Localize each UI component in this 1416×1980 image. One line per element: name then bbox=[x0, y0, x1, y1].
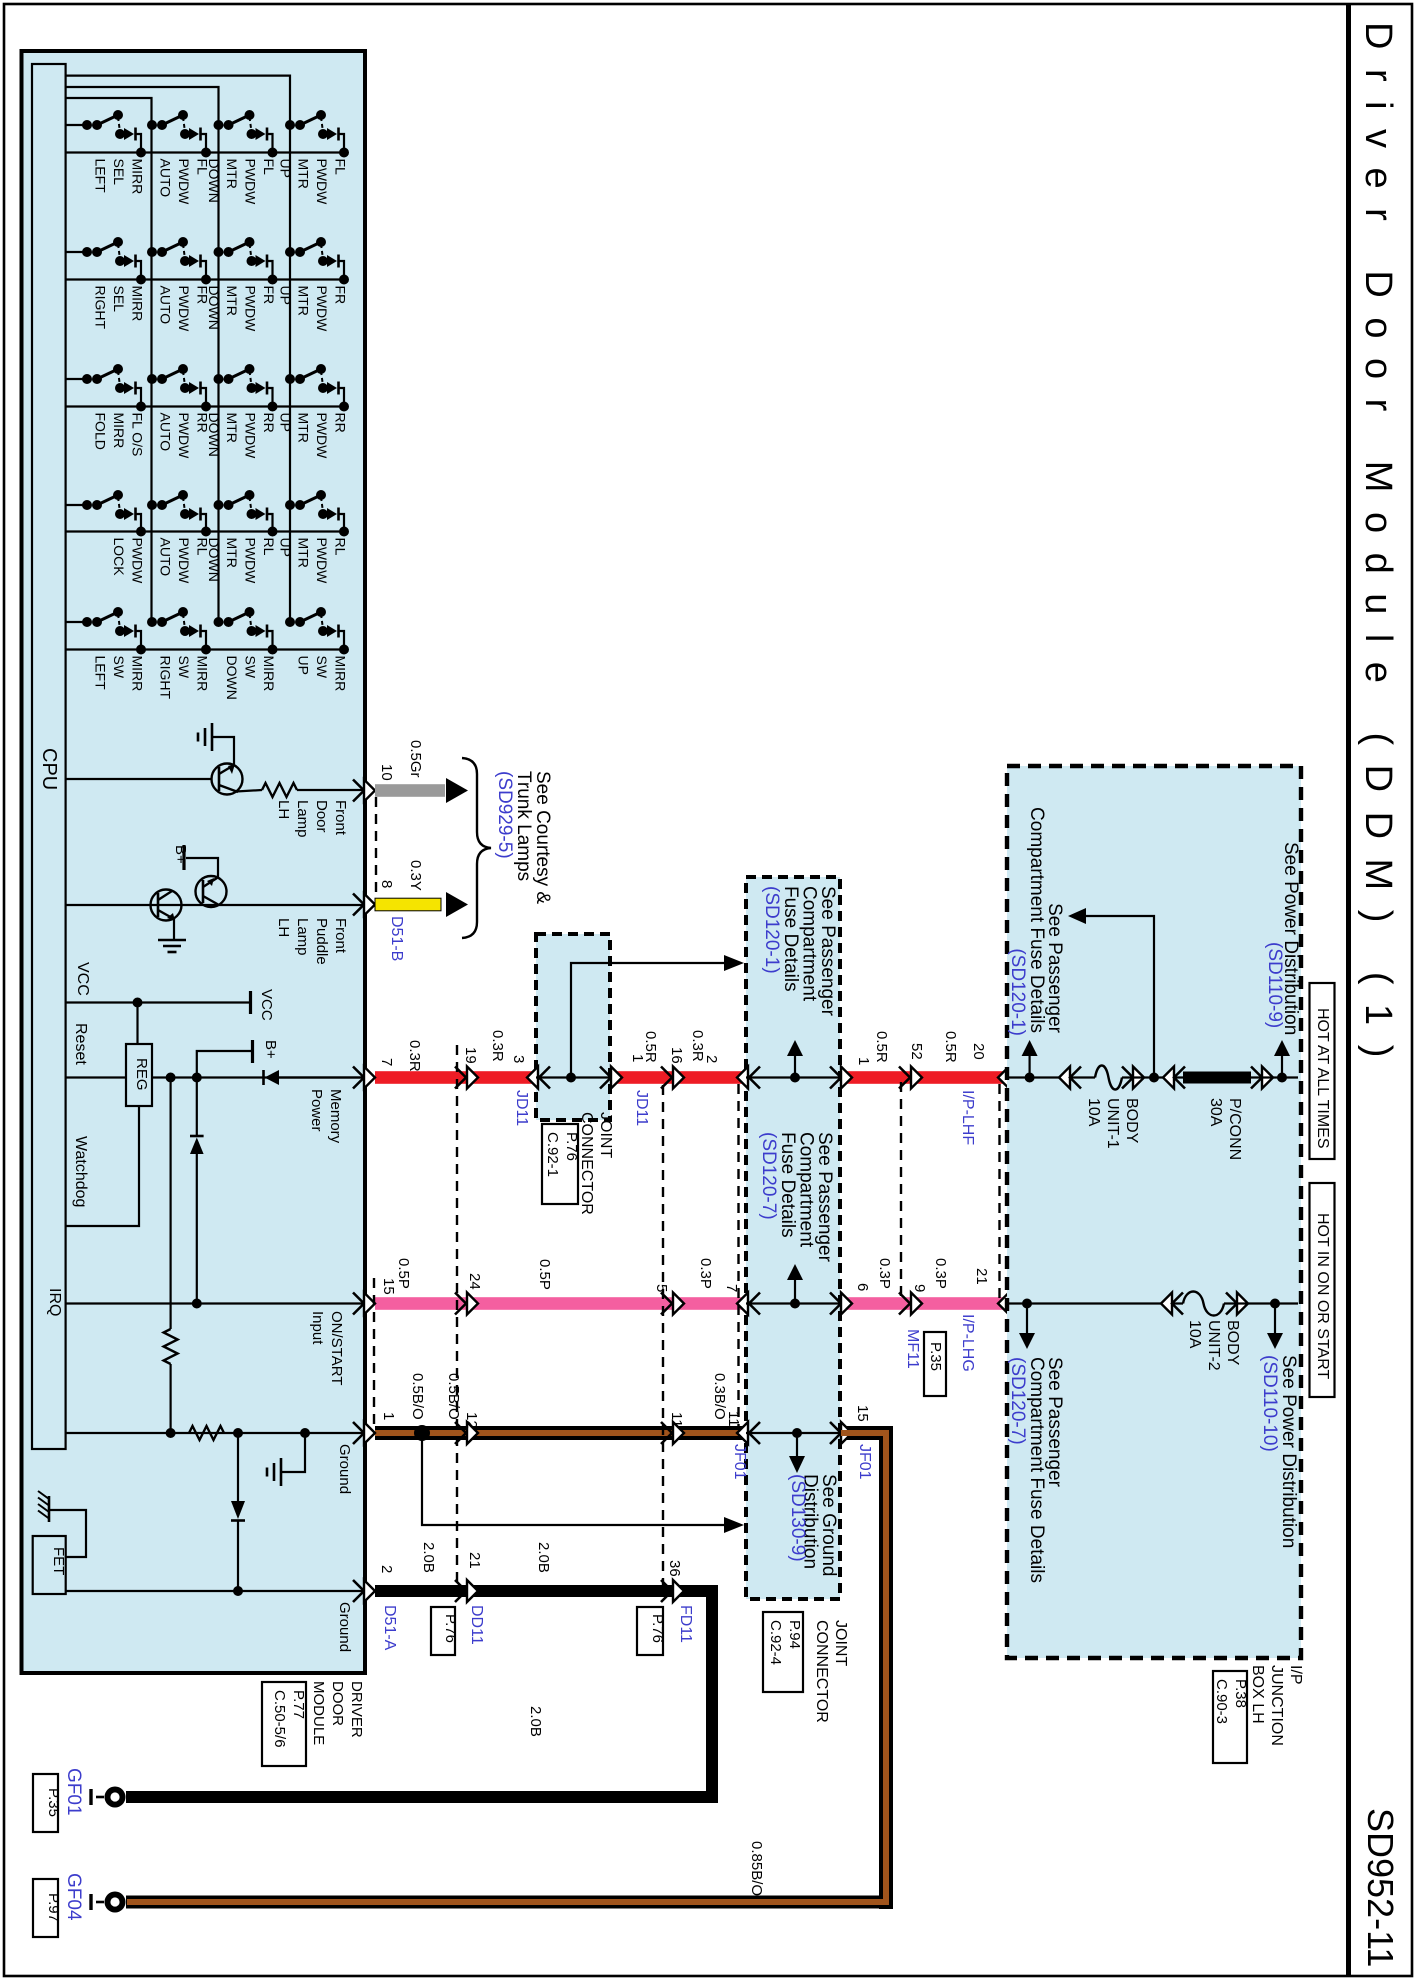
svg-text:10: 10 bbox=[378, 764, 395, 781]
svg-text:1: 1 bbox=[855, 1057, 872, 1065]
svg-text:0.5B/O: 0.5B/O bbox=[445, 1373, 462, 1420]
svg-text:12: 12 bbox=[463, 1412, 480, 1429]
svg-text:0.85B/O: 0.85B/O bbox=[748, 1841, 765, 1896]
svg-text:7: 7 bbox=[378, 1058, 395, 1066]
svg-text:0.3R: 0.3R bbox=[489, 1030, 506, 1062]
svg-text:B+: B+ bbox=[262, 1040, 279, 1059]
svg-text:19: 19 bbox=[462, 1047, 479, 1064]
svg-text:(SD120-7): (SD120-7) bbox=[758, 1132, 779, 1220]
svg-text:Compartment Fuse Details: Compartment Fuse Details bbox=[1026, 807, 1047, 1033]
svg-text:D51-A: D51-A bbox=[381, 1605, 398, 1651]
svg-text:(SD130-9): (SD130-9) bbox=[787, 1474, 808, 1562]
svg-text:FET: FET bbox=[50, 1547, 67, 1575]
svg-text:JD11: JD11 bbox=[633, 1090, 650, 1126]
svg-text:P.76: P.76 bbox=[649, 1614, 666, 1643]
svg-text:(SD929-5): (SD929-5) bbox=[494, 771, 515, 859]
svg-text:3: 3 bbox=[510, 1055, 527, 1063]
svg-text:Compartment Fuse Details: Compartment Fuse Details bbox=[1026, 1357, 1047, 1583]
svg-text:FD11: FD11 bbox=[677, 1605, 694, 1643]
svg-text:0.3P: 0.3P bbox=[697, 1258, 714, 1289]
svg-text:2: 2 bbox=[703, 1055, 720, 1063]
svg-text:6: 6 bbox=[854, 1283, 871, 1291]
svg-text:(SD110-10): (SD110-10) bbox=[1259, 1355, 1280, 1452]
svg-text:JF01: JF01 bbox=[731, 1444, 748, 1480]
svg-text:11: 11 bbox=[668, 1412, 685, 1428]
svg-text:Driver Door Module (DDM) (1): Driver Door Module (DDM) (1) bbox=[1357, 22, 1399, 1077]
svg-text:52: 52 bbox=[908, 1043, 925, 1060]
svg-text:I/P-LHG: I/P-LHG bbox=[959, 1314, 976, 1372]
svg-text:REG: REG bbox=[133, 1058, 150, 1091]
svg-text:2: 2 bbox=[378, 1565, 395, 1573]
svg-text:(SD120-1): (SD120-1) bbox=[761, 886, 782, 974]
svg-text:(SD110-9): (SD110-9) bbox=[1264, 942, 1285, 1028]
svg-text:15: 15 bbox=[380, 1278, 397, 1295]
svg-text:20: 20 bbox=[970, 1043, 987, 1060]
svg-text:15: 15 bbox=[854, 1405, 871, 1422]
svg-text:DD11: DD11 bbox=[468, 1605, 485, 1645]
svg-text:0.5Gr: 0.5Gr bbox=[407, 740, 424, 778]
svg-text:SD952-11: SD952-11 bbox=[1360, 1808, 1401, 1967]
svg-text:P.97: P.97 bbox=[45, 1893, 62, 1922]
svg-text:0.5P: 0.5P bbox=[536, 1259, 553, 1290]
svg-text:VCC: VCC bbox=[74, 962, 91, 996]
svg-text:0.3Y: 0.3Y bbox=[407, 860, 424, 891]
svg-text:0.3P: 0.3P bbox=[932, 1258, 949, 1289]
svg-text:0.5B/O: 0.5B/O bbox=[409, 1373, 426, 1420]
svg-text:P.35: P.35 bbox=[45, 1788, 62, 1817]
svg-text:0.5R: 0.5R bbox=[642, 1031, 659, 1063]
svg-text:9: 9 bbox=[911, 1284, 928, 1292]
svg-text:Watchdog: Watchdog bbox=[72, 1136, 89, 1207]
svg-text:See Power Distribution: See Power Distribution bbox=[1278, 1355, 1299, 1548]
svg-text:P.35: P.35 bbox=[927, 1342, 944, 1371]
svg-text:B+: B+ bbox=[172, 845, 189, 864]
svg-text:MF11: MF11 bbox=[904, 1329, 921, 1369]
svg-text:2.0B: 2.0B bbox=[535, 1542, 552, 1573]
svg-text:I/P-LHF: I/P-LHF bbox=[959, 1090, 976, 1145]
svg-text:0.5R: 0.5R bbox=[942, 1031, 959, 1063]
svg-text:0.3R: 0.3R bbox=[406, 1040, 423, 1072]
svg-text:HOT IN ON OR START: HOT IN ON OR START bbox=[1314, 1213, 1331, 1379]
svg-text:24: 24 bbox=[466, 1273, 483, 1290]
svg-text:21: 21 bbox=[466, 1552, 483, 1569]
svg-text:JF01: JF01 bbox=[856, 1444, 873, 1480]
svg-text:Ground: Ground bbox=[336, 1444, 353, 1494]
svg-text:1: 1 bbox=[380, 1412, 397, 1420]
svg-text:D51-B: D51-B bbox=[388, 916, 405, 961]
svg-text:2.0B: 2.0B bbox=[527, 1706, 544, 1737]
svg-text:Reset: Reset bbox=[72, 1023, 89, 1065]
svg-text:GF04: GF04 bbox=[63, 1873, 84, 1921]
svg-text:2.0B: 2.0B bbox=[420, 1542, 437, 1573]
svg-text:21: 21 bbox=[973, 1268, 990, 1285]
svg-text:16: 16 bbox=[668, 1047, 685, 1064]
svg-text:JD11: JD11 bbox=[513, 1090, 530, 1126]
svg-text:HOT AT ALL TIMES: HOT AT ALL TIMES bbox=[1314, 1008, 1331, 1149]
svg-text:IRQ: IRQ bbox=[46, 1288, 63, 1316]
svg-text:P.76: P.76 bbox=[442, 1614, 459, 1643]
svg-text:CPU: CPU bbox=[38, 748, 60, 790]
svg-text:VCC: VCC bbox=[258, 989, 275, 1021]
svg-text:(SD120-1): (SD120-1) bbox=[1007, 948, 1028, 1036]
svg-text:(SD120-7): (SD120-7) bbox=[1007, 1357, 1028, 1445]
svg-text:0.3P: 0.3P bbox=[876, 1258, 893, 1289]
svg-text:GF01: GF01 bbox=[63, 1768, 84, 1816]
svg-text:5: 5 bbox=[653, 1284, 670, 1292]
svg-text:8: 8 bbox=[378, 880, 395, 888]
svg-text:36: 36 bbox=[666, 1560, 683, 1577]
svg-text:0.5R: 0.5R bbox=[873, 1031, 890, 1063]
svg-text:Ground: Ground bbox=[336, 1602, 353, 1652]
svg-text:0.5P: 0.5P bbox=[395, 1258, 412, 1289]
